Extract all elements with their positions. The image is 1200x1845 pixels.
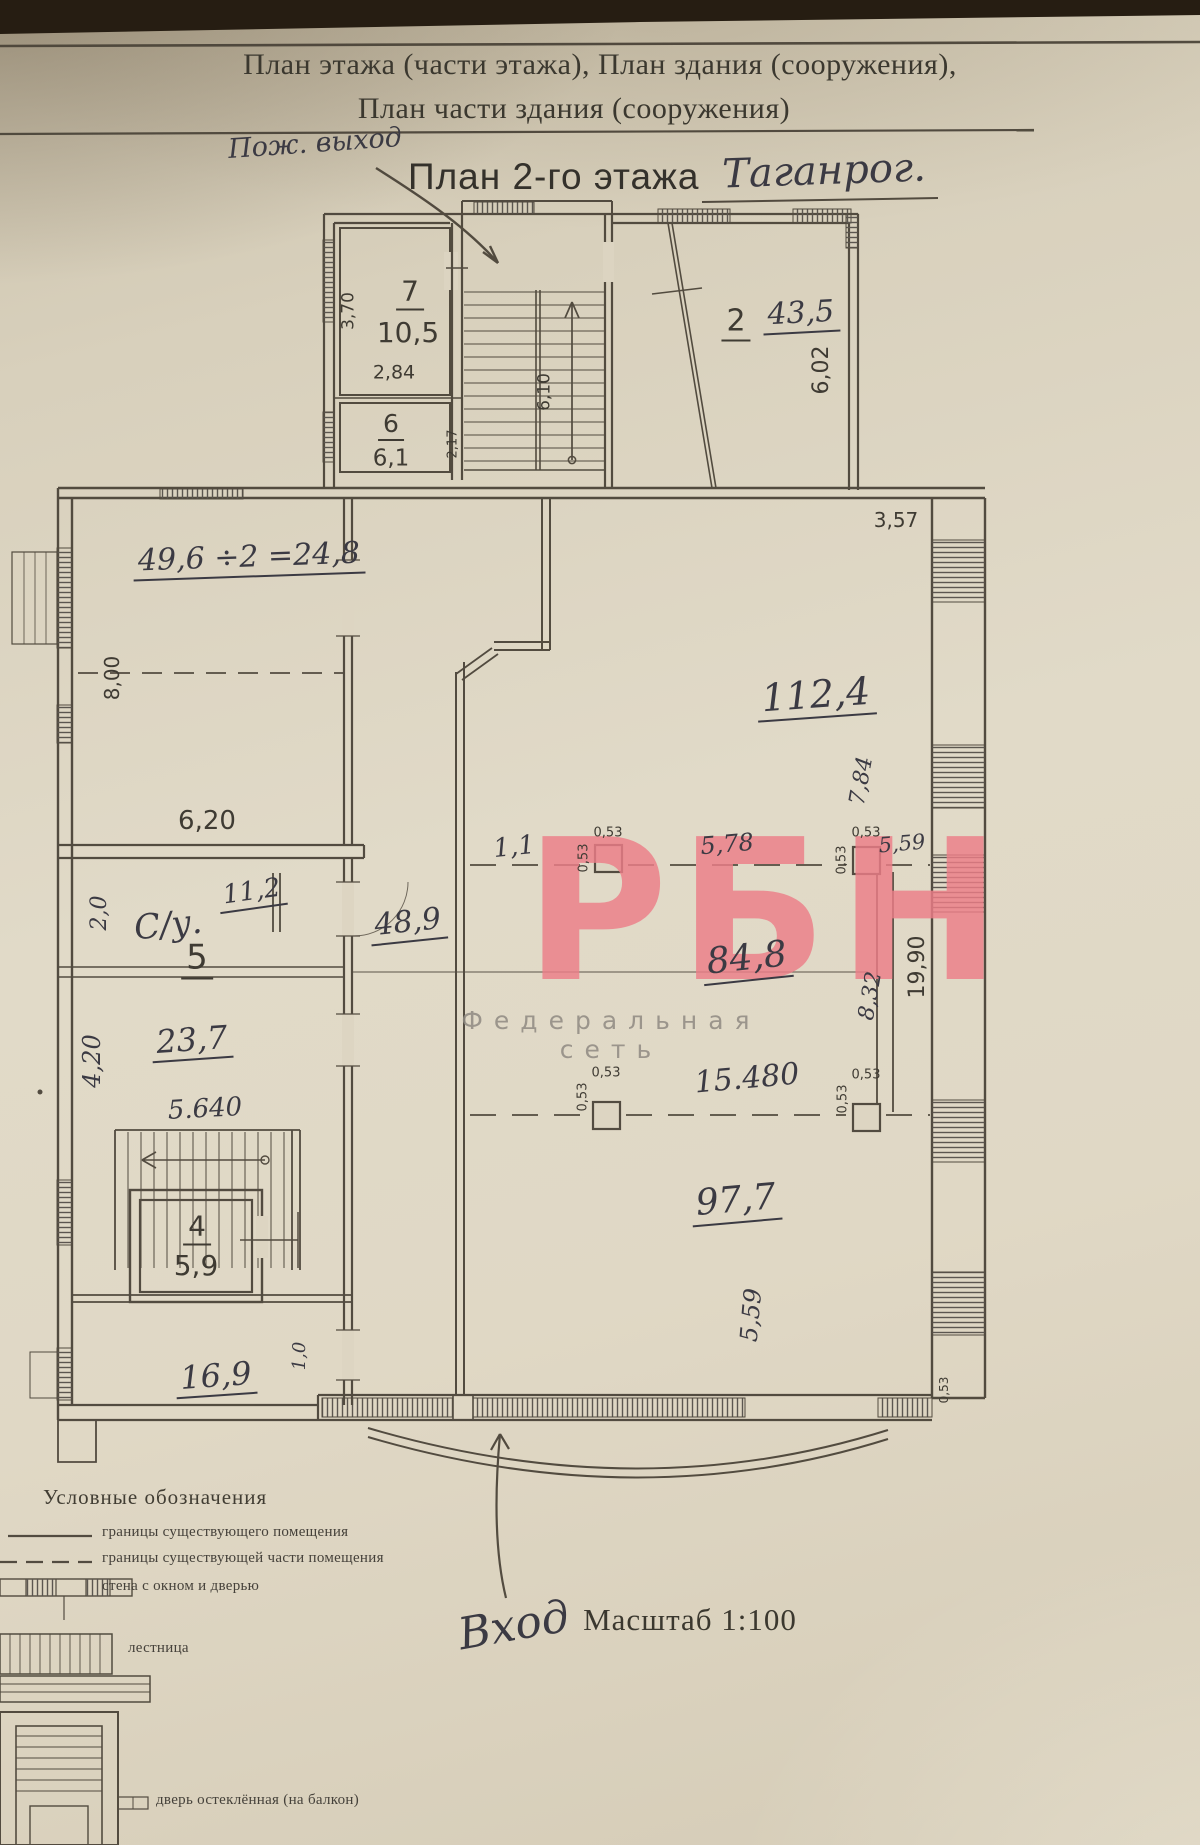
room5-area: 23,7 bbox=[150, 1021, 234, 1064]
room4-area: 5,9 bbox=[174, 1252, 219, 1280]
scanned-floor-plan-page: { "document": { "header_line1": "План эт… bbox=[0, 0, 1200, 1845]
corridor-area: 48,9 bbox=[368, 904, 448, 947]
room6-number: 6 bbox=[378, 411, 404, 441]
room4-number: 4 bbox=[183, 1213, 211, 1246]
room7-area: 10,5 bbox=[377, 319, 439, 347]
dim-8-32: 8,32 bbox=[856, 970, 886, 1022]
column3-depth-dim: 0,53 bbox=[577, 1083, 590, 1112]
room49-width-dim: 6,20 bbox=[178, 808, 236, 834]
room6-area: 6,1 bbox=[373, 448, 410, 471]
hall-area-97-7: 97,7 bbox=[689, 1179, 782, 1228]
stair-flight-dim: 6,10 bbox=[537, 373, 554, 411]
room7-depth-dim: 3,70 bbox=[341, 292, 358, 330]
dim-1-1: 1,1 bbox=[492, 832, 536, 862]
dim-7-84: 7,84 bbox=[847, 755, 877, 807]
corner-dim-0-53: 0,53 bbox=[938, 1377, 950, 1404]
room2-depth-dim: 6,02 bbox=[811, 346, 833, 395]
column4-depth-dim: 0,53 bbox=[837, 1085, 850, 1114]
column3-width-dim: 0,53 bbox=[592, 1067, 621, 1080]
room2-number: 2 bbox=[721, 307, 750, 342]
wc-area: 11,2 bbox=[216, 874, 288, 914]
plan-dimension-labels: 710,52,843,7066,12,176,10243,56,023,5749… bbox=[0, 0, 1200, 1845]
wall-dim-3-57: 3,57 bbox=[874, 510, 919, 530]
room2-area: 43,5 bbox=[762, 297, 841, 336]
dim-1-0: 1,0 bbox=[291, 1342, 309, 1371]
room16-area: 16,9 bbox=[174, 1357, 258, 1400]
dim-5-640: 5.640 bbox=[167, 1094, 243, 1124]
dim-5-59-upper: 5,59 bbox=[878, 832, 926, 857]
hall-area-84-8: 84,8 bbox=[700, 936, 794, 986]
dim-5-78: 5,78 bbox=[699, 830, 754, 859]
column4-width-dim: 0,53 bbox=[852, 1069, 881, 1082]
wc-width-dim: 2,0 bbox=[89, 896, 111, 931]
room7-width-dim: 2,84 bbox=[373, 364, 415, 383]
wall-dim-19-90: 19,90 bbox=[907, 936, 929, 999]
room49-depth-dim: 8,00 bbox=[102, 656, 122, 701]
room5-depth-dim: 4,20 bbox=[80, 1034, 104, 1087]
area-calculation-note: 49,6 ÷2 =24,8 bbox=[132, 538, 365, 581]
hall-area-112-4: 112,4 bbox=[755, 671, 877, 722]
column2-width-dim: 0,53 bbox=[852, 827, 881, 840]
column1-width-dim: 0,53 bbox=[594, 827, 623, 840]
column1-depth-dim: 0,53 bbox=[578, 844, 591, 873]
dim-15-480: 15.480 bbox=[693, 1059, 800, 1098]
dim-5-59-lower: 5,59 bbox=[737, 1287, 766, 1342]
room5-number: 5 bbox=[181, 941, 213, 980]
room7-number: 7 bbox=[396, 278, 424, 311]
room6-depth-dim: 2,17 bbox=[447, 430, 460, 459]
column2-depth-dim: 0,53 bbox=[836, 846, 849, 875]
